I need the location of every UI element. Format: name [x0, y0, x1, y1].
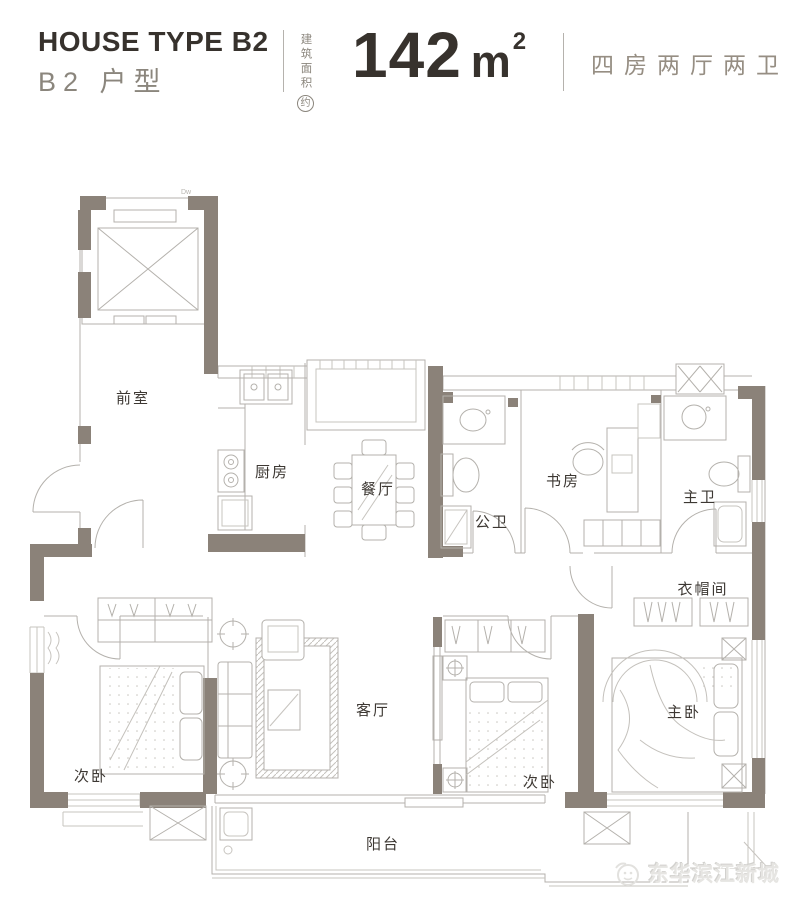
living-room-furniture: [217, 618, 442, 790]
master-bed: [603, 650, 742, 792]
room-label-guest-bath: 公卫: [475, 514, 509, 531]
brand-logo-icon: [612, 858, 642, 888]
room-label-master-bath: 主卫: [683, 489, 717, 506]
room-label-master-bedroom: 主卧: [667, 704, 701, 721]
room-label-balcony: 阳台: [366, 836, 400, 853]
room-label-living: 客厅: [356, 702, 390, 719]
room-label-dining: 餐厅: [361, 481, 395, 498]
balcony-structure: [150, 795, 688, 886]
room-label-front-room: 前室: [116, 390, 150, 407]
left-bedroom-furniture: [48, 598, 212, 774]
floorplan-drawing: 前室 厨房 餐厅 公卫 书房 主卫 衣帽间 次卧 客厅 次卧 主卧 阳台 Dw: [0, 0, 800, 914]
master-bath-fixtures: [664, 396, 750, 546]
room-label-study: 书房: [546, 473, 580, 490]
room-label-kitchen: 厨房: [255, 464, 289, 481]
room-labels: 前室 厨房 餐厅 公卫 书房 主卫 衣帽间 次卧 客厅 次卧 主卧 阳台: [74, 390, 729, 853]
closet-racks: [634, 598, 748, 788]
room-label-closet: 衣帽间: [677, 581, 728, 598]
room-label-bedroom-left: 次卧: [74, 768, 108, 785]
room-label-bedroom-middle: 次卧: [523, 774, 557, 791]
kitchen-fixtures: [218, 370, 292, 530]
middle-bedroom-furniture: [443, 620, 548, 792]
brand-watermark: 东华滨江新城: [612, 858, 780, 888]
floorplan-page: HOUSE TYPE B2 B2 户型 建筑面积 约 142m2 四房两厅两卫: [0, 0, 800, 914]
tiny-drawing-note: Dw: [181, 189, 192, 196]
elevator-icon: [98, 228, 198, 310]
study-furniture: [572, 404, 660, 546]
brand-watermark-text: 东华滨江新城: [648, 858, 780, 888]
